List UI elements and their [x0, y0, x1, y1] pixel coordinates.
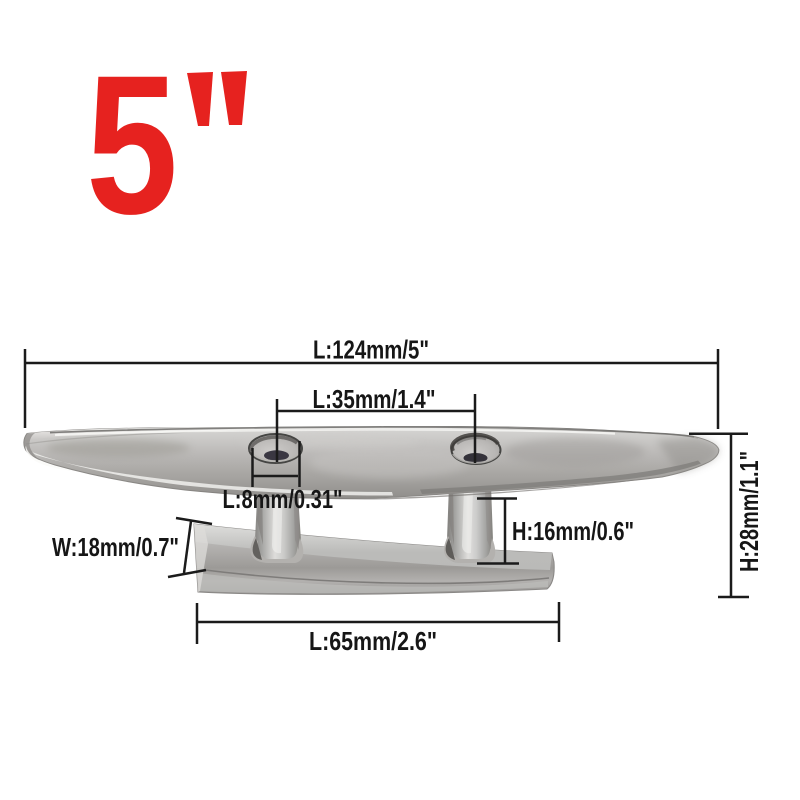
svg-text:L:8mm/0.31": L:8mm/0.31" [223, 484, 343, 514]
svg-text:H:16mm/0.6": H:16mm/0.6" [512, 516, 634, 546]
svg-text:5: 5 [86, 34, 178, 255]
svg-text:L:35mm/1.4": L:35mm/1.4" [313, 384, 436, 414]
svg-text:H:28mm/1.1": H:28mm/1.1" [734, 451, 764, 572]
svg-text:L:124mm/5": L:124mm/5" [313, 335, 429, 365]
svg-text:L:65mm/2.6": L:65mm/2.6" [309, 626, 437, 656]
svg-text:W:18mm/0.7": W:18mm/0.7" [52, 532, 179, 562]
